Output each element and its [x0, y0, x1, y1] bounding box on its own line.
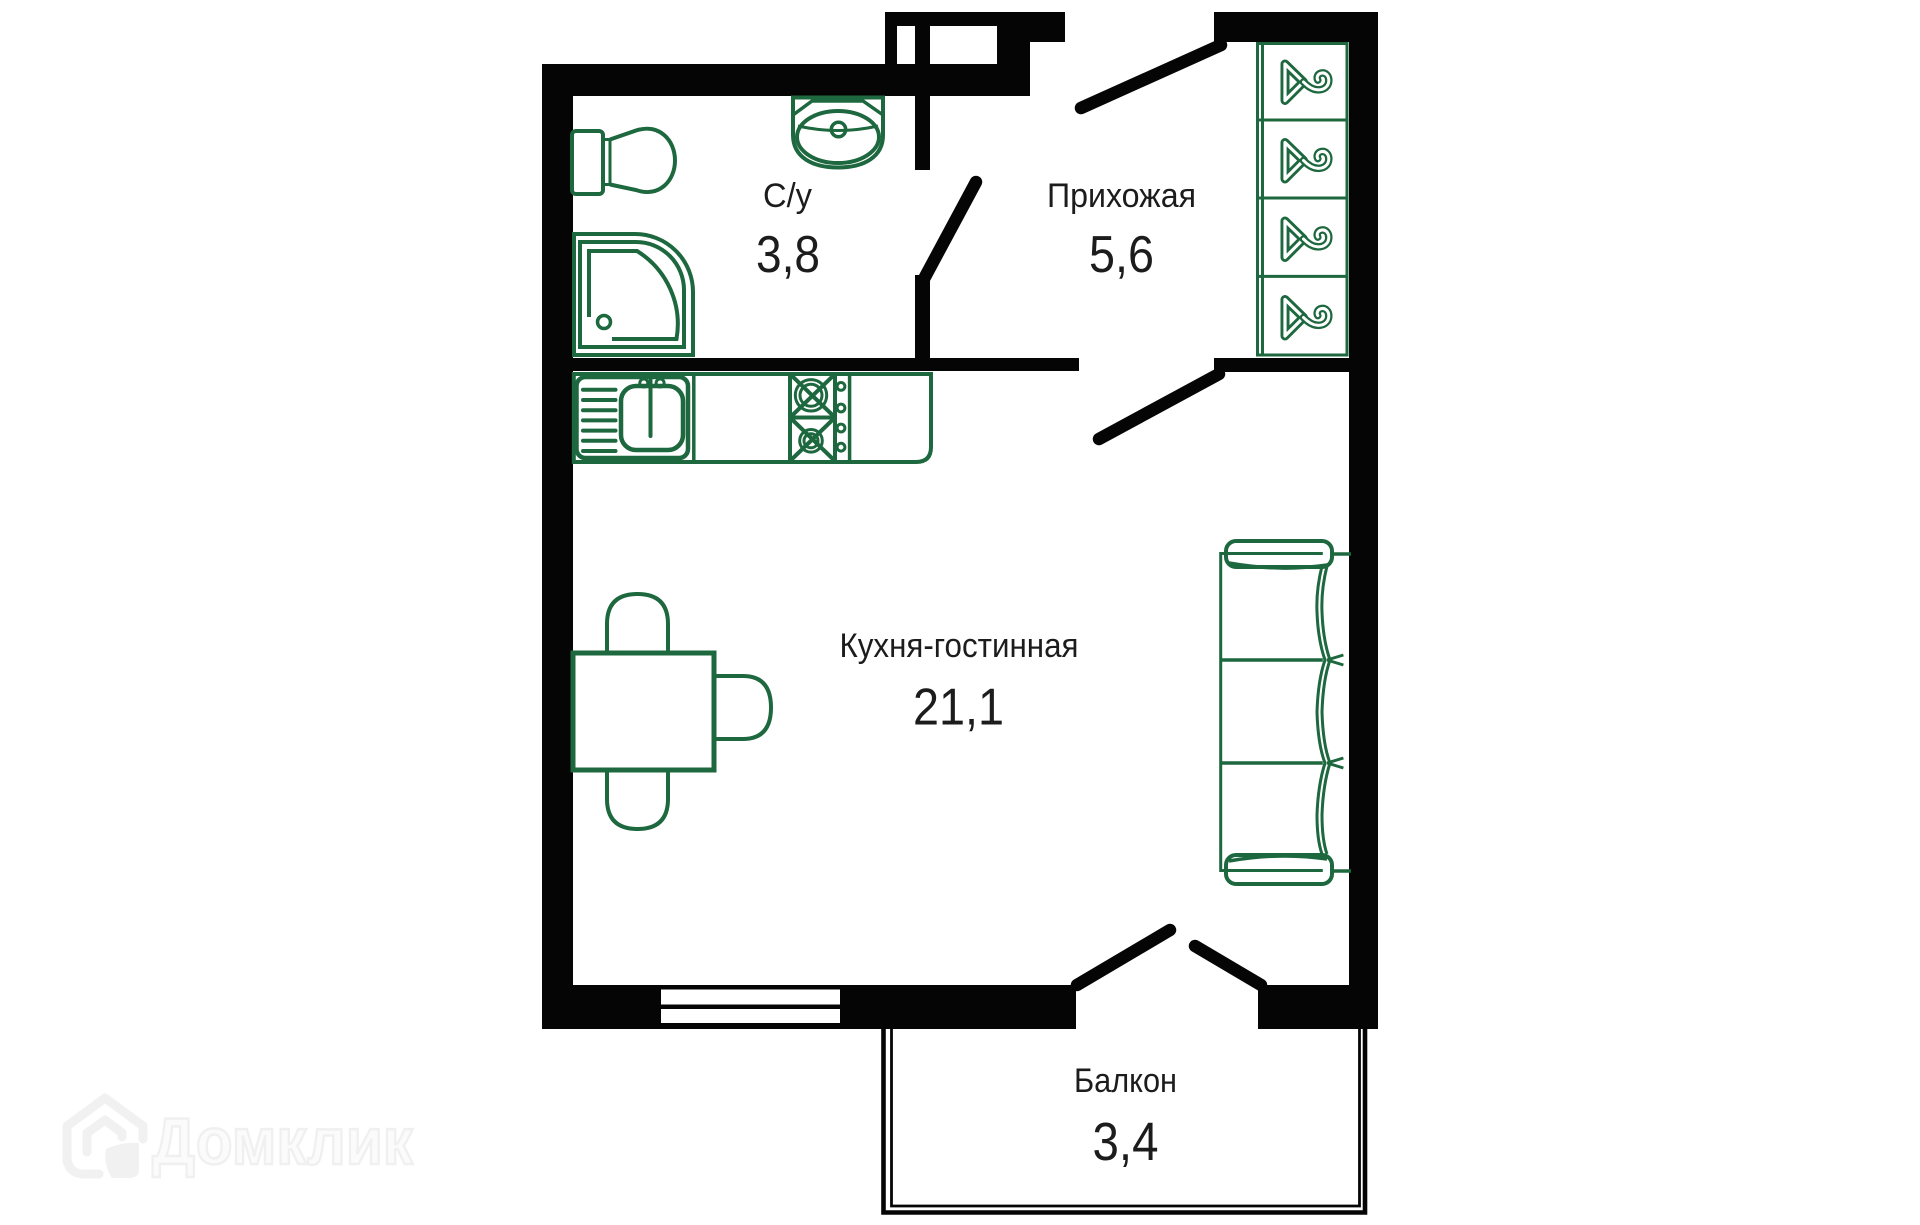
svg-text:Домклик: Домклик: [152, 1104, 414, 1178]
svg-text:Кухня-гостинная: Кухня-гостинная: [840, 627, 1079, 665]
svg-text:3,8: 3,8: [756, 226, 820, 284]
svg-text:21,1: 21,1: [913, 679, 1004, 737]
svg-text:Балкон: Балкон: [1074, 1062, 1177, 1100]
svg-text:Прихожая: Прихожая: [1047, 177, 1196, 215]
svg-text:3,4: 3,4: [1093, 1112, 1159, 1172]
svg-text:5,6: 5,6: [1089, 226, 1154, 284]
svg-text:С/у: С/у: [763, 177, 812, 215]
